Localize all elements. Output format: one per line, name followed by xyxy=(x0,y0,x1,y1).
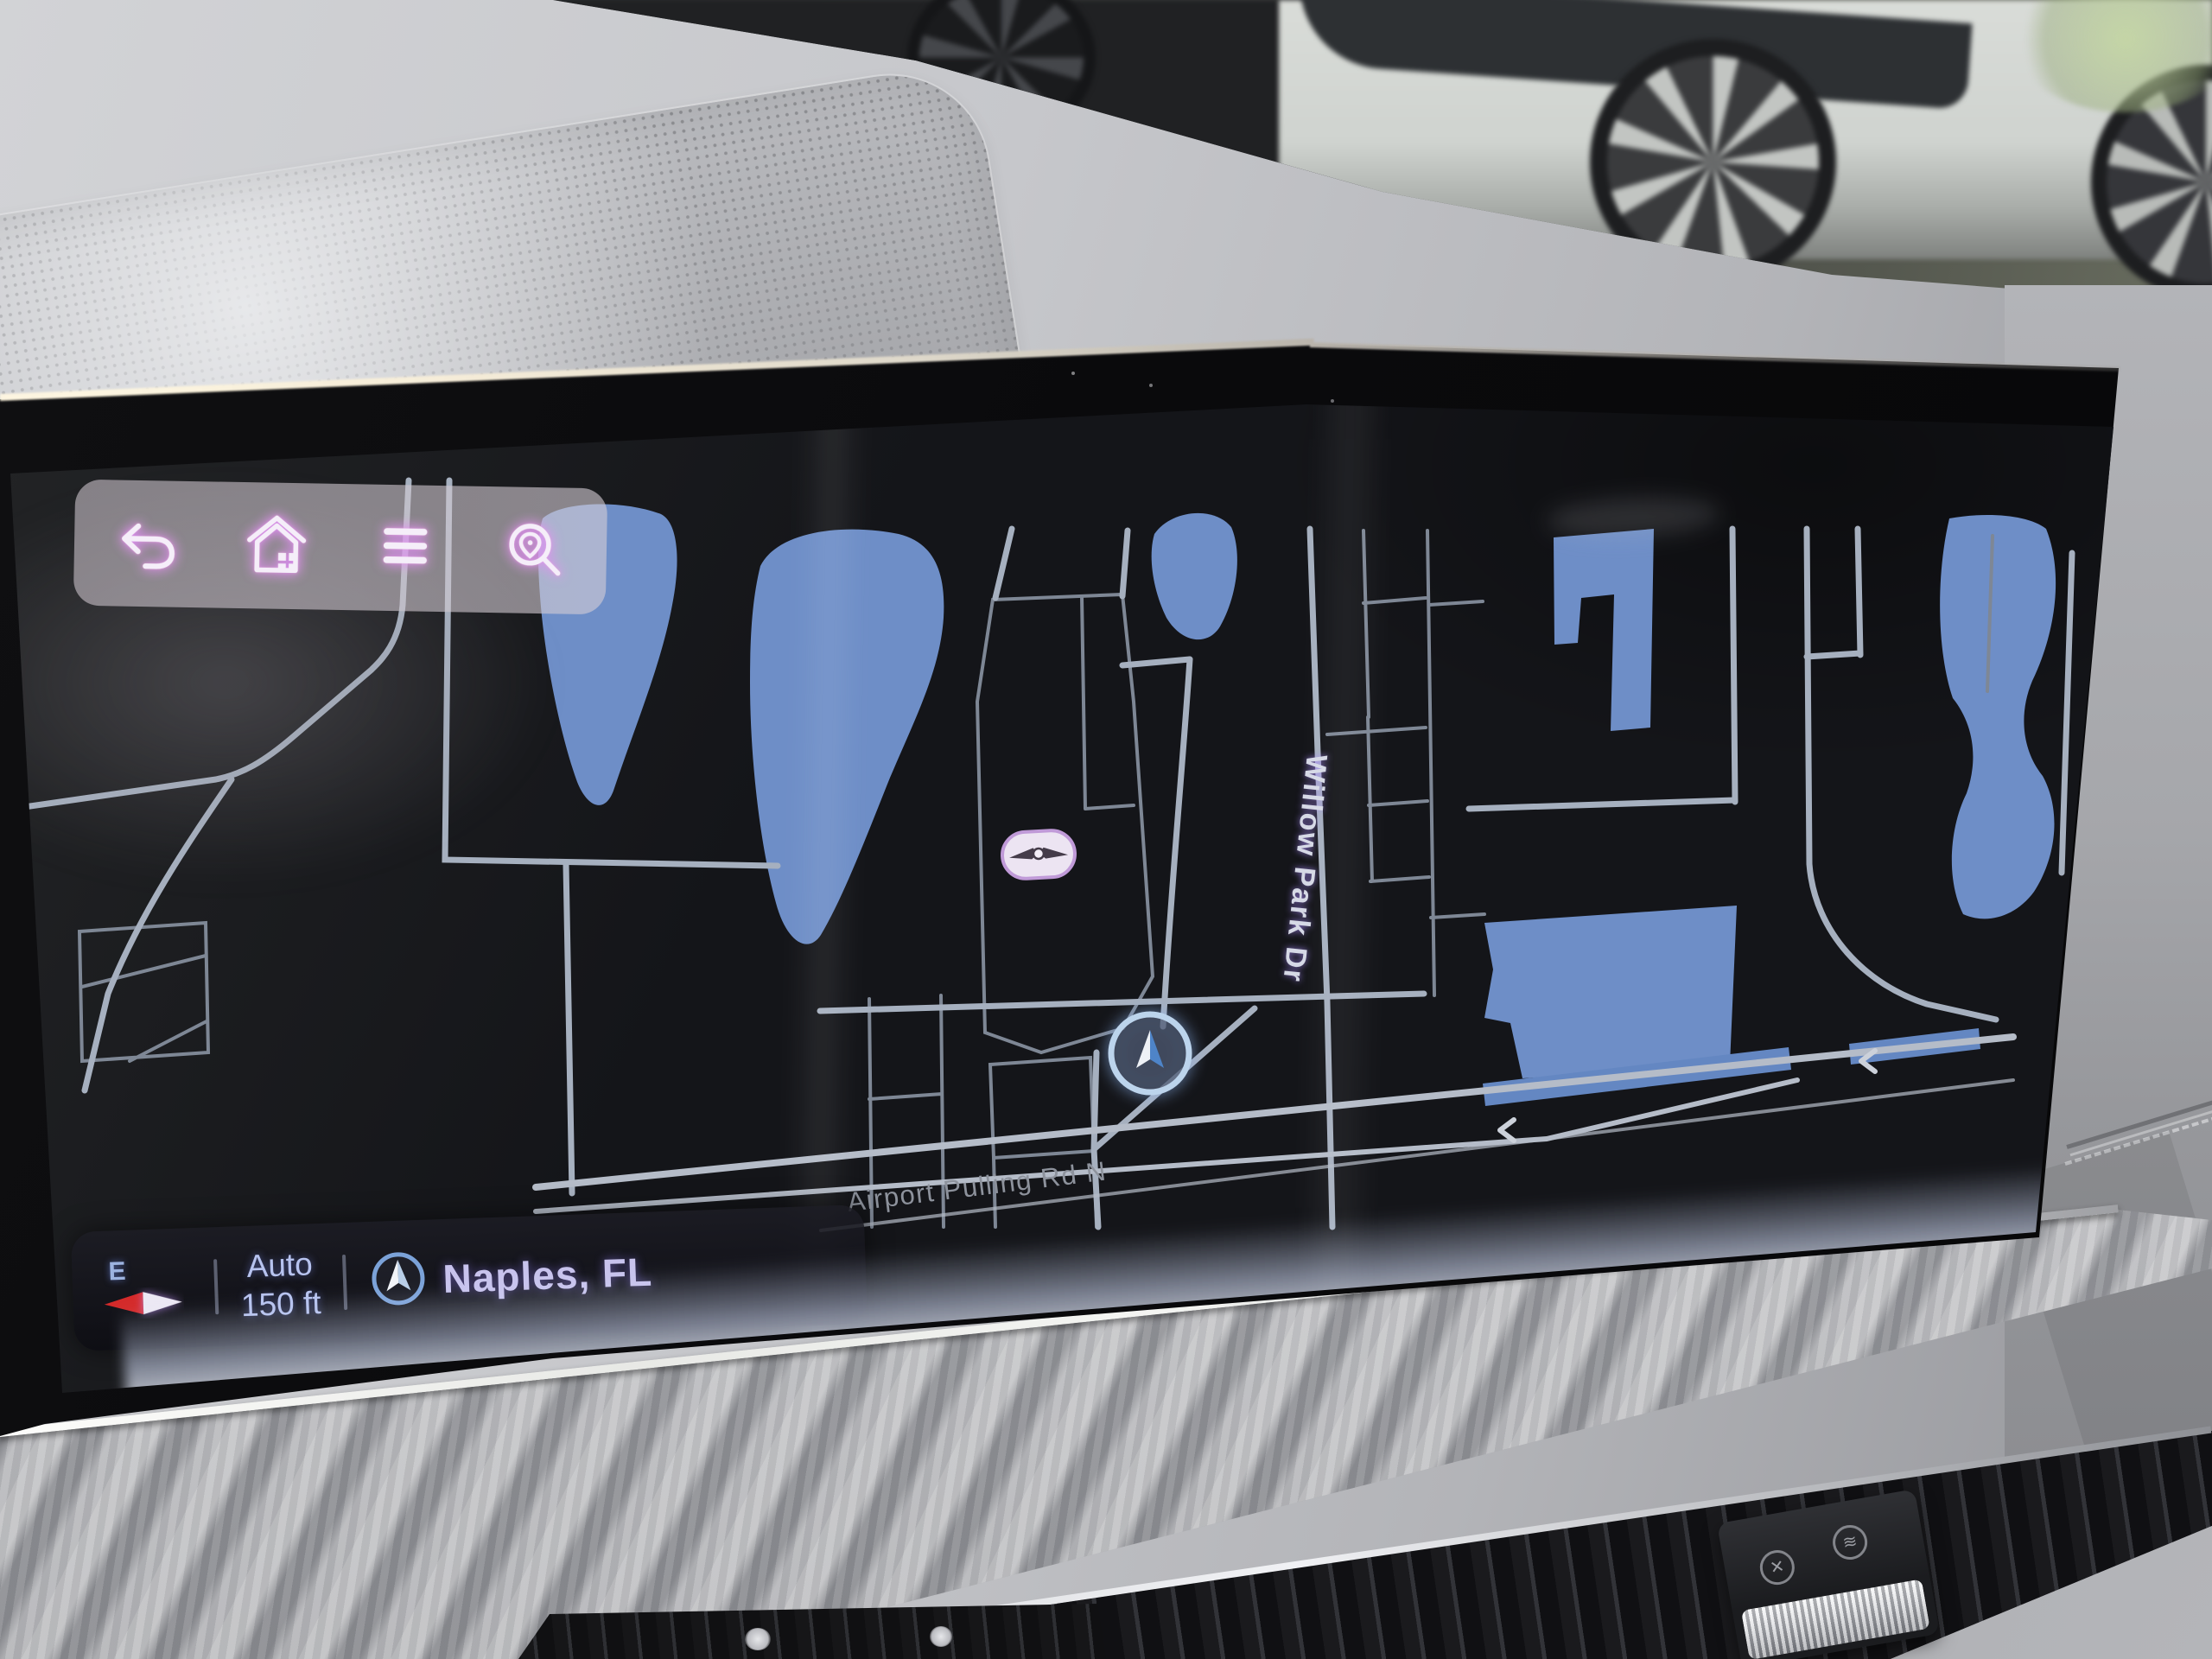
scale-mode-label: Auto xyxy=(246,1244,314,1286)
street-label-airport-pulling: Airport Pulling Rd N xyxy=(846,1155,1109,1217)
search-location-icon xyxy=(502,517,565,584)
vent-emblem-icon: ≋ xyxy=(1830,1522,1870,1562)
vent-knob xyxy=(745,1628,771,1650)
back-icon xyxy=(116,510,179,577)
menu-button[interactable] xyxy=(363,499,448,597)
vent-emblem-icon: ✕ xyxy=(1758,1548,1797,1587)
vent-knob xyxy=(930,1626,952,1647)
search-button[interactable] xyxy=(491,501,575,600)
genesis-logo-pill-marker xyxy=(1001,829,1077,880)
back-button[interactable] xyxy=(105,494,190,593)
home-button[interactable] xyxy=(234,497,319,595)
compass-direction-label: E xyxy=(108,1256,126,1287)
map-toolbar xyxy=(73,480,607,615)
car-wheel xyxy=(1590,39,1836,285)
dashboard-photo: ✕ ≋ xyxy=(0,0,2212,1659)
menu-icon xyxy=(374,515,435,581)
dust-specks xyxy=(1071,372,1075,375)
home-icon xyxy=(243,511,309,582)
glass-reflection xyxy=(1293,371,1393,1340)
current-position-marker xyxy=(1111,1014,1189,1092)
